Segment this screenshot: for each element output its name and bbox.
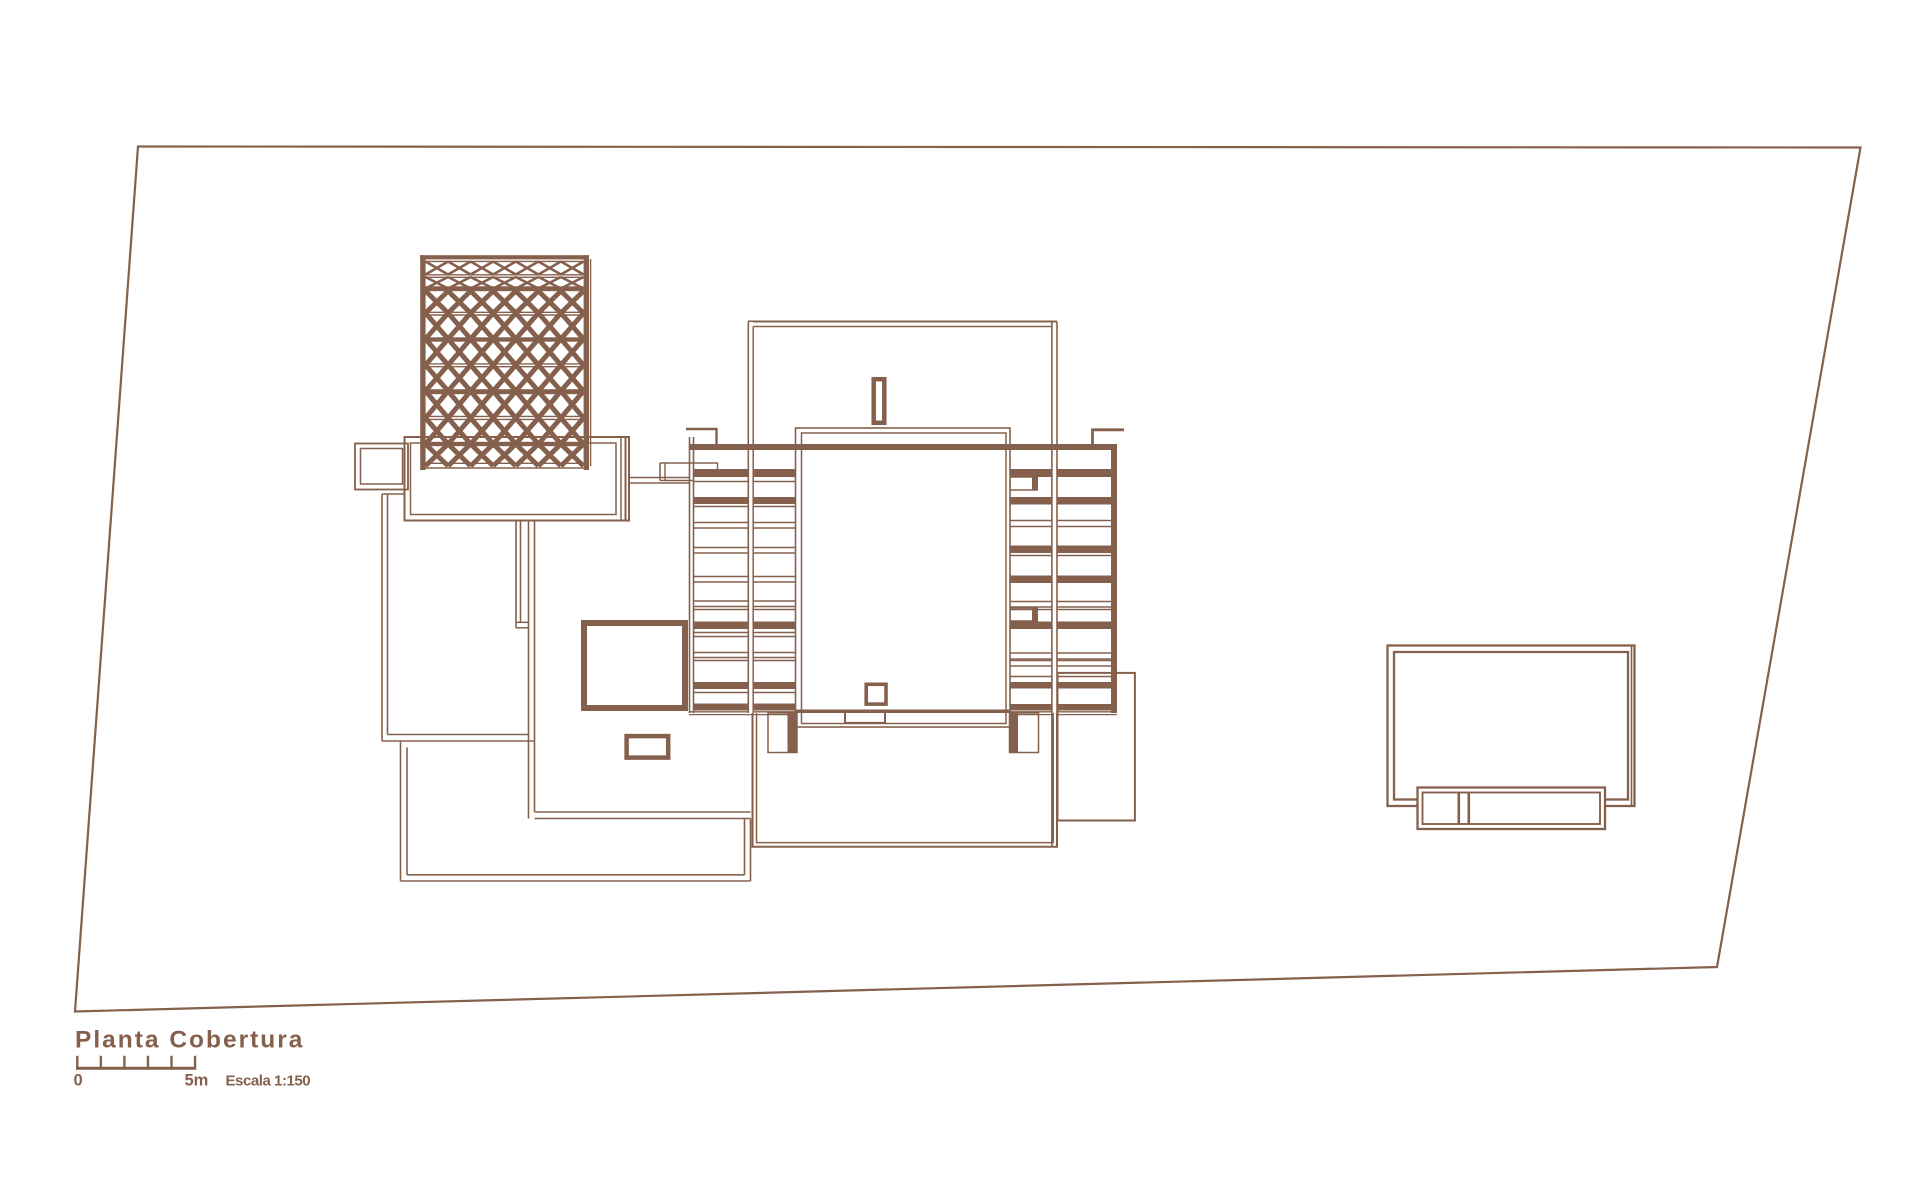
svg-text:5m: 5m xyxy=(185,1072,209,1090)
svg-text:Planta Cobertura: Planta Cobertura xyxy=(75,1027,304,1054)
svg-text:0: 0 xyxy=(74,1072,83,1090)
svg-text:Escala 1:150: Escala 1:150 xyxy=(226,1073,311,1090)
